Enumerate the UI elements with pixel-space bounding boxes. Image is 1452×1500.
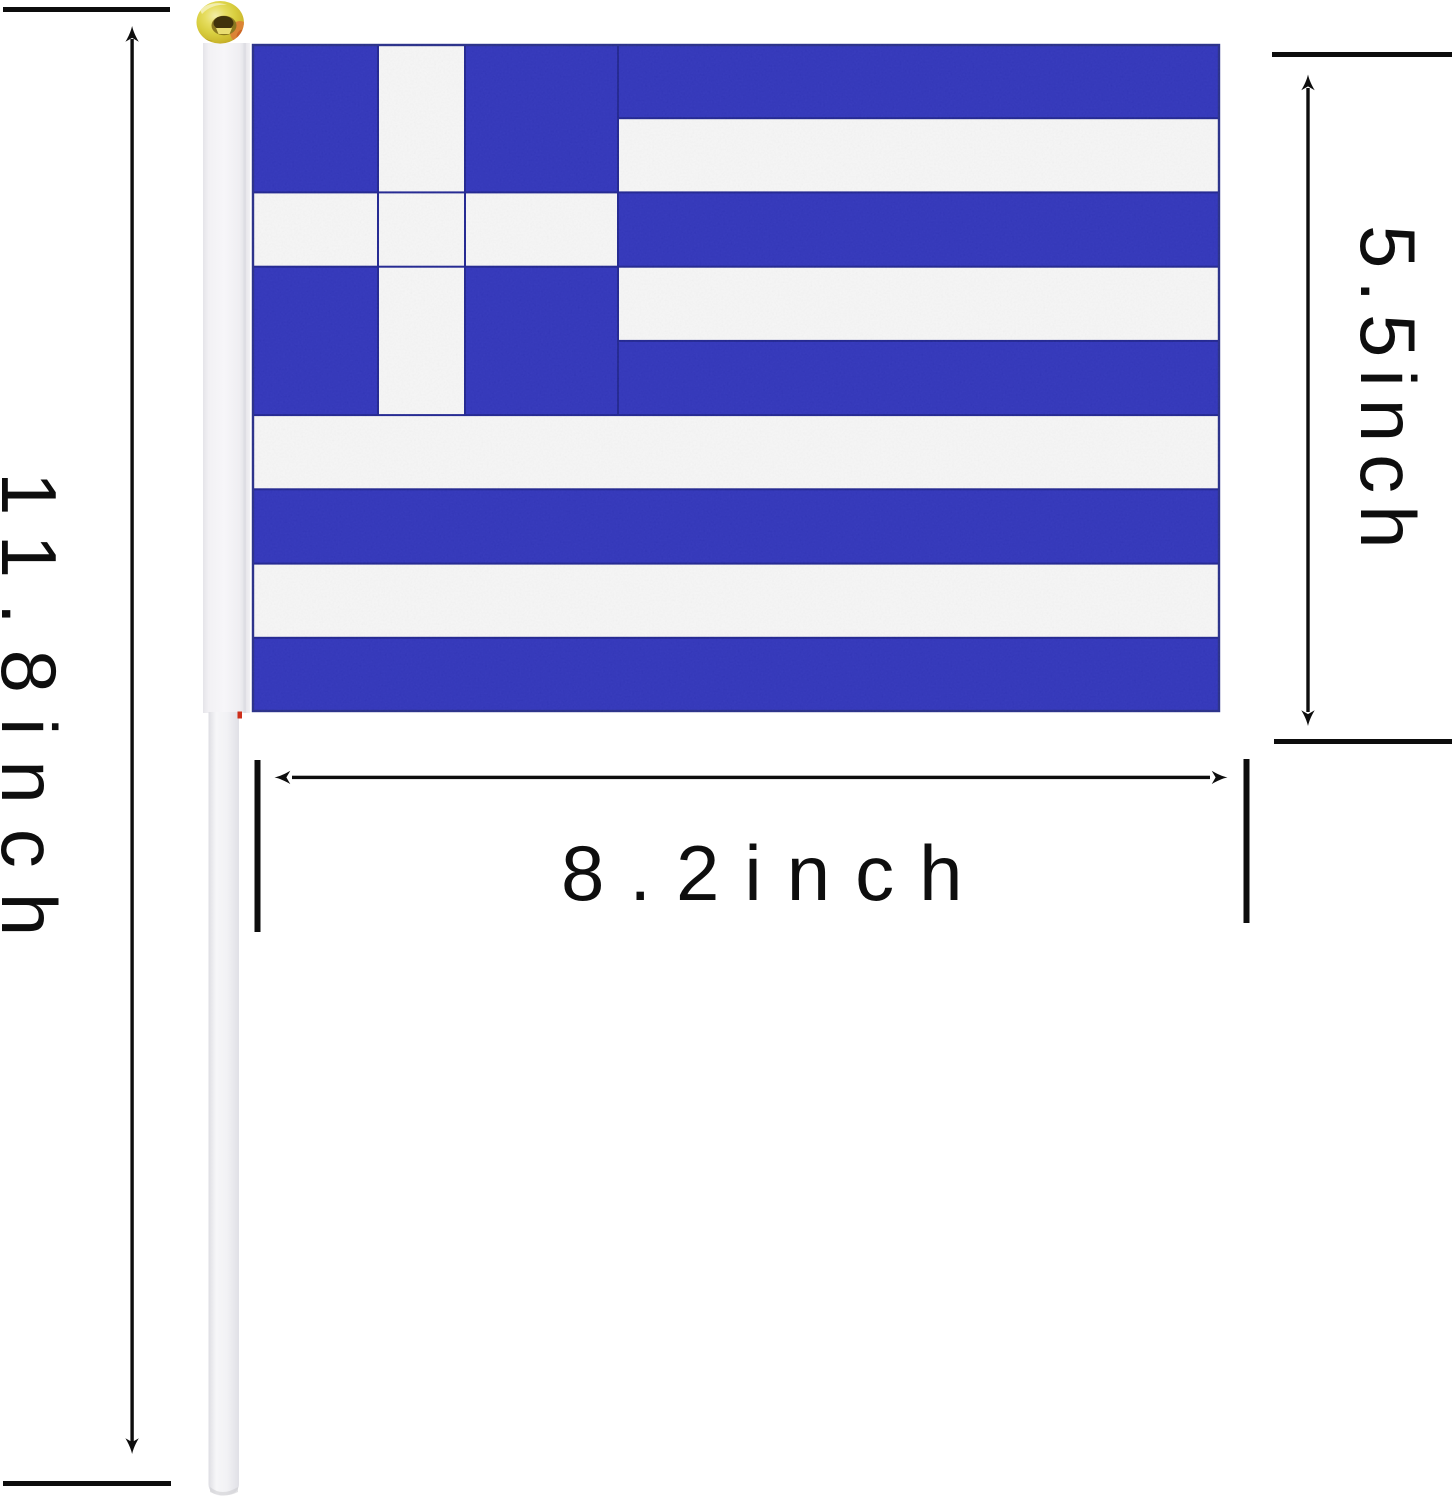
- svg-text:11.8inch: 11.8inch: [0, 472, 73, 961]
- svg-text:8.2inch: 8.2inch: [561, 829, 988, 917]
- svg-text:5.5inch: 5.5inch: [1344, 225, 1432, 561]
